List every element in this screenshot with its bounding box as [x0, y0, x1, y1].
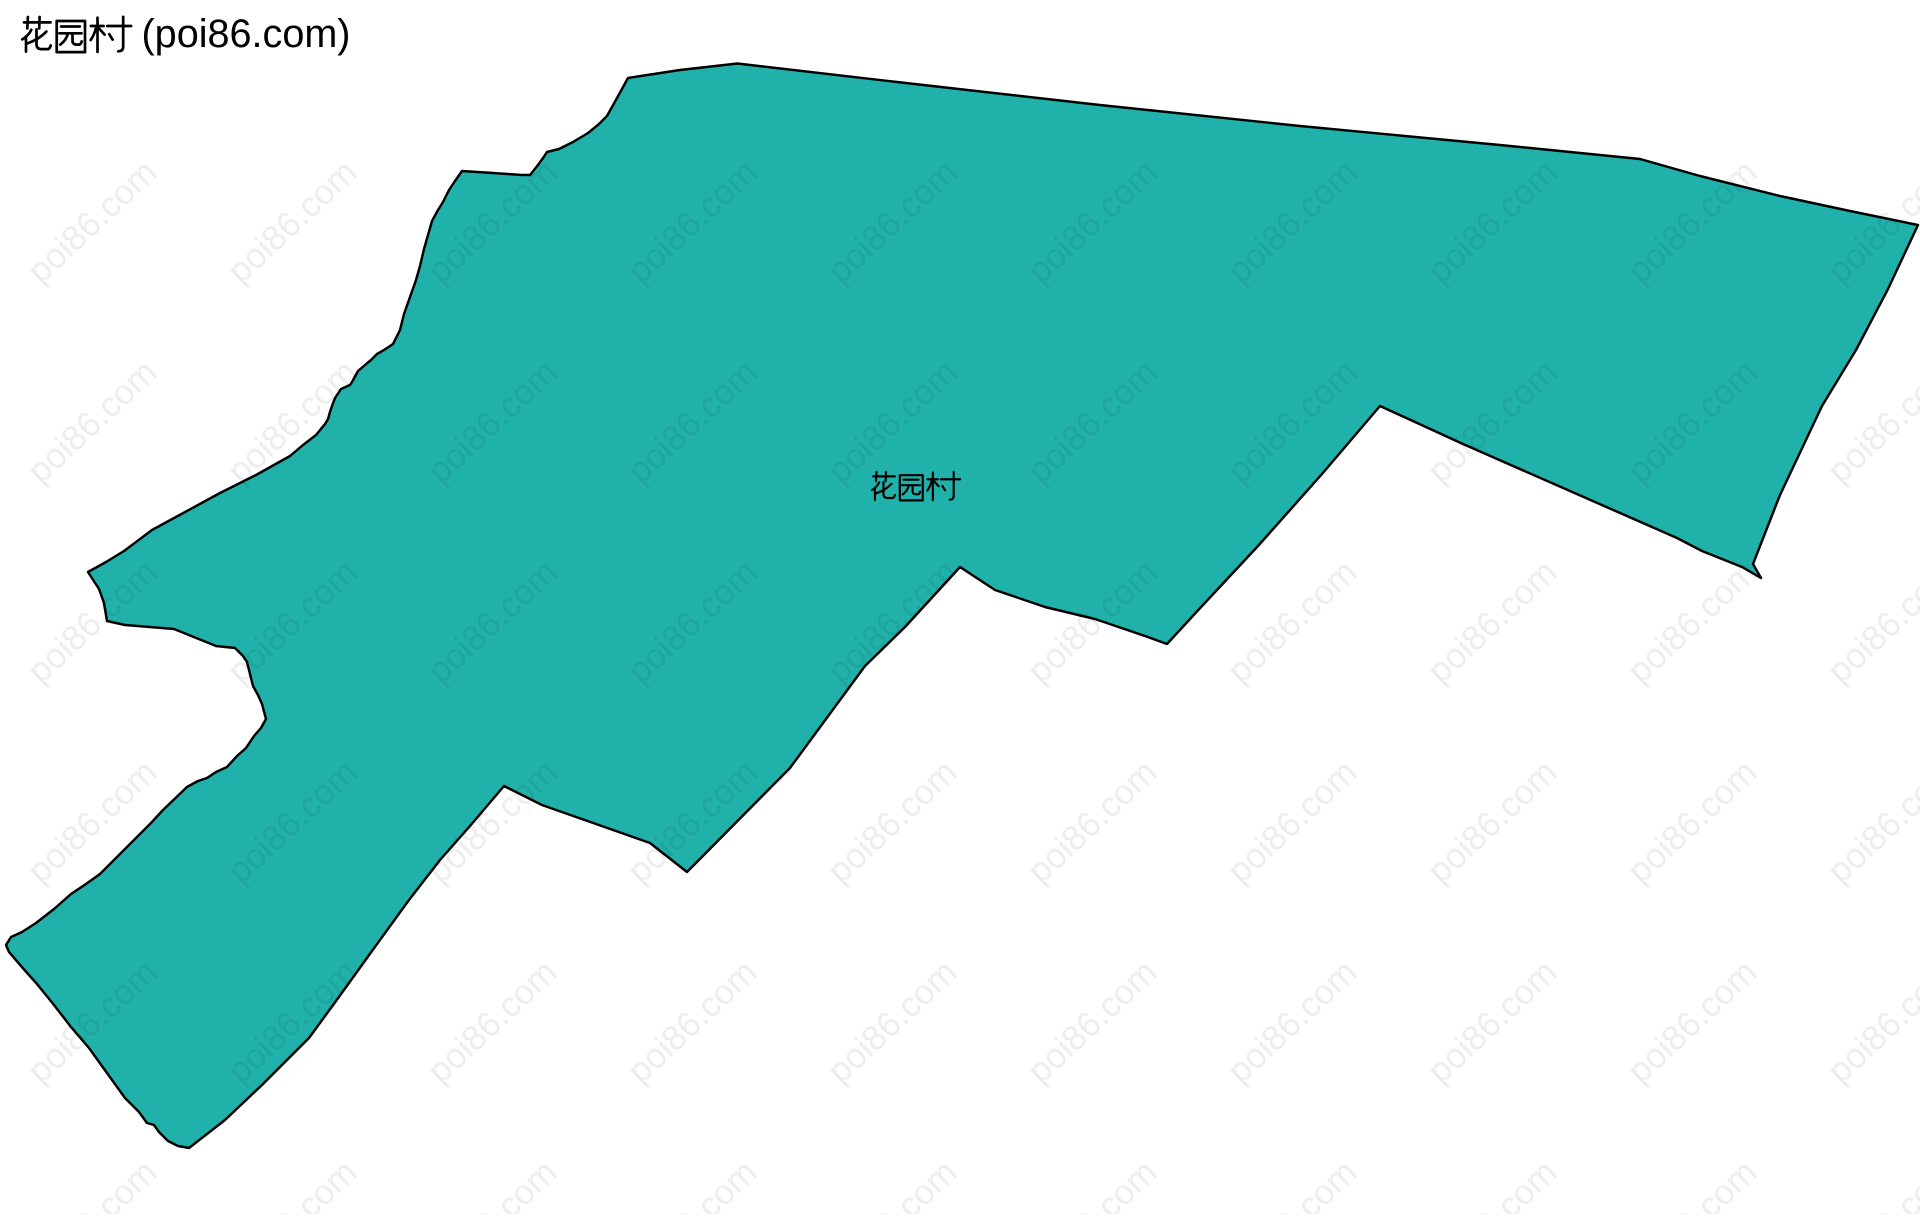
svg-text:poi86.com: poi86.com	[1220, 1152, 1365, 1214]
svg-text:poi86.com: poi86.com	[1220, 752, 1365, 891]
svg-text:poi86.com: poi86.com	[20, 352, 165, 491]
svg-text:poi86.com: poi86.com	[220, 1152, 365, 1214]
svg-text:poi86.com: poi86.com	[1820, 752, 1920, 891]
svg-text:poi86.com: poi86.com	[820, 952, 965, 1091]
svg-text:poi86.com: poi86.com	[820, 752, 965, 891]
svg-text:poi86.com: poi86.com	[620, 1152, 765, 1214]
svg-text:poi86.com: poi86.com	[1420, 552, 1565, 691]
svg-text:poi86.com: poi86.com	[20, 152, 165, 291]
svg-text:poi86.com: poi86.com	[420, 1152, 565, 1214]
svg-text:poi86.com: poi86.com	[1420, 952, 1565, 1091]
svg-text:poi86.com: poi86.com	[1620, 1152, 1765, 1214]
svg-text:poi86.com: poi86.com	[420, 952, 565, 1091]
svg-text:poi86.com: poi86.com	[1020, 752, 1165, 891]
svg-text:poi86.com: poi86.com	[1820, 952, 1920, 1091]
svg-text:poi86.com: poi86.com	[1620, 552, 1765, 691]
svg-text:poi86.com: poi86.com	[1420, 752, 1565, 891]
svg-text:poi86.com: poi86.com	[1020, 1152, 1165, 1214]
svg-text:poi86.com: poi86.com	[1220, 952, 1365, 1091]
svg-text:poi86.com: poi86.com	[1820, 1152, 1920, 1214]
svg-text:poi86.com: poi86.com	[1620, 752, 1765, 891]
svg-text:poi86.com: poi86.com	[20, 1152, 165, 1214]
svg-text:poi86.com: poi86.com	[1420, 1152, 1565, 1214]
svg-text:poi86.com: poi86.com	[620, 952, 765, 1091]
svg-text:(poi86.com): (poi86.com)	[142, 12, 351, 56]
svg-text:poi86.com: poi86.com	[220, 152, 365, 291]
svg-text:poi86.com: poi86.com	[820, 1152, 965, 1214]
svg-text:poi86.com: poi86.com	[1020, 952, 1165, 1091]
svg-text:poi86.com: poi86.com	[1220, 552, 1365, 691]
svg-text:poi86.com: poi86.com	[1620, 952, 1765, 1091]
svg-text:poi86.com: poi86.com	[1820, 552, 1920, 691]
